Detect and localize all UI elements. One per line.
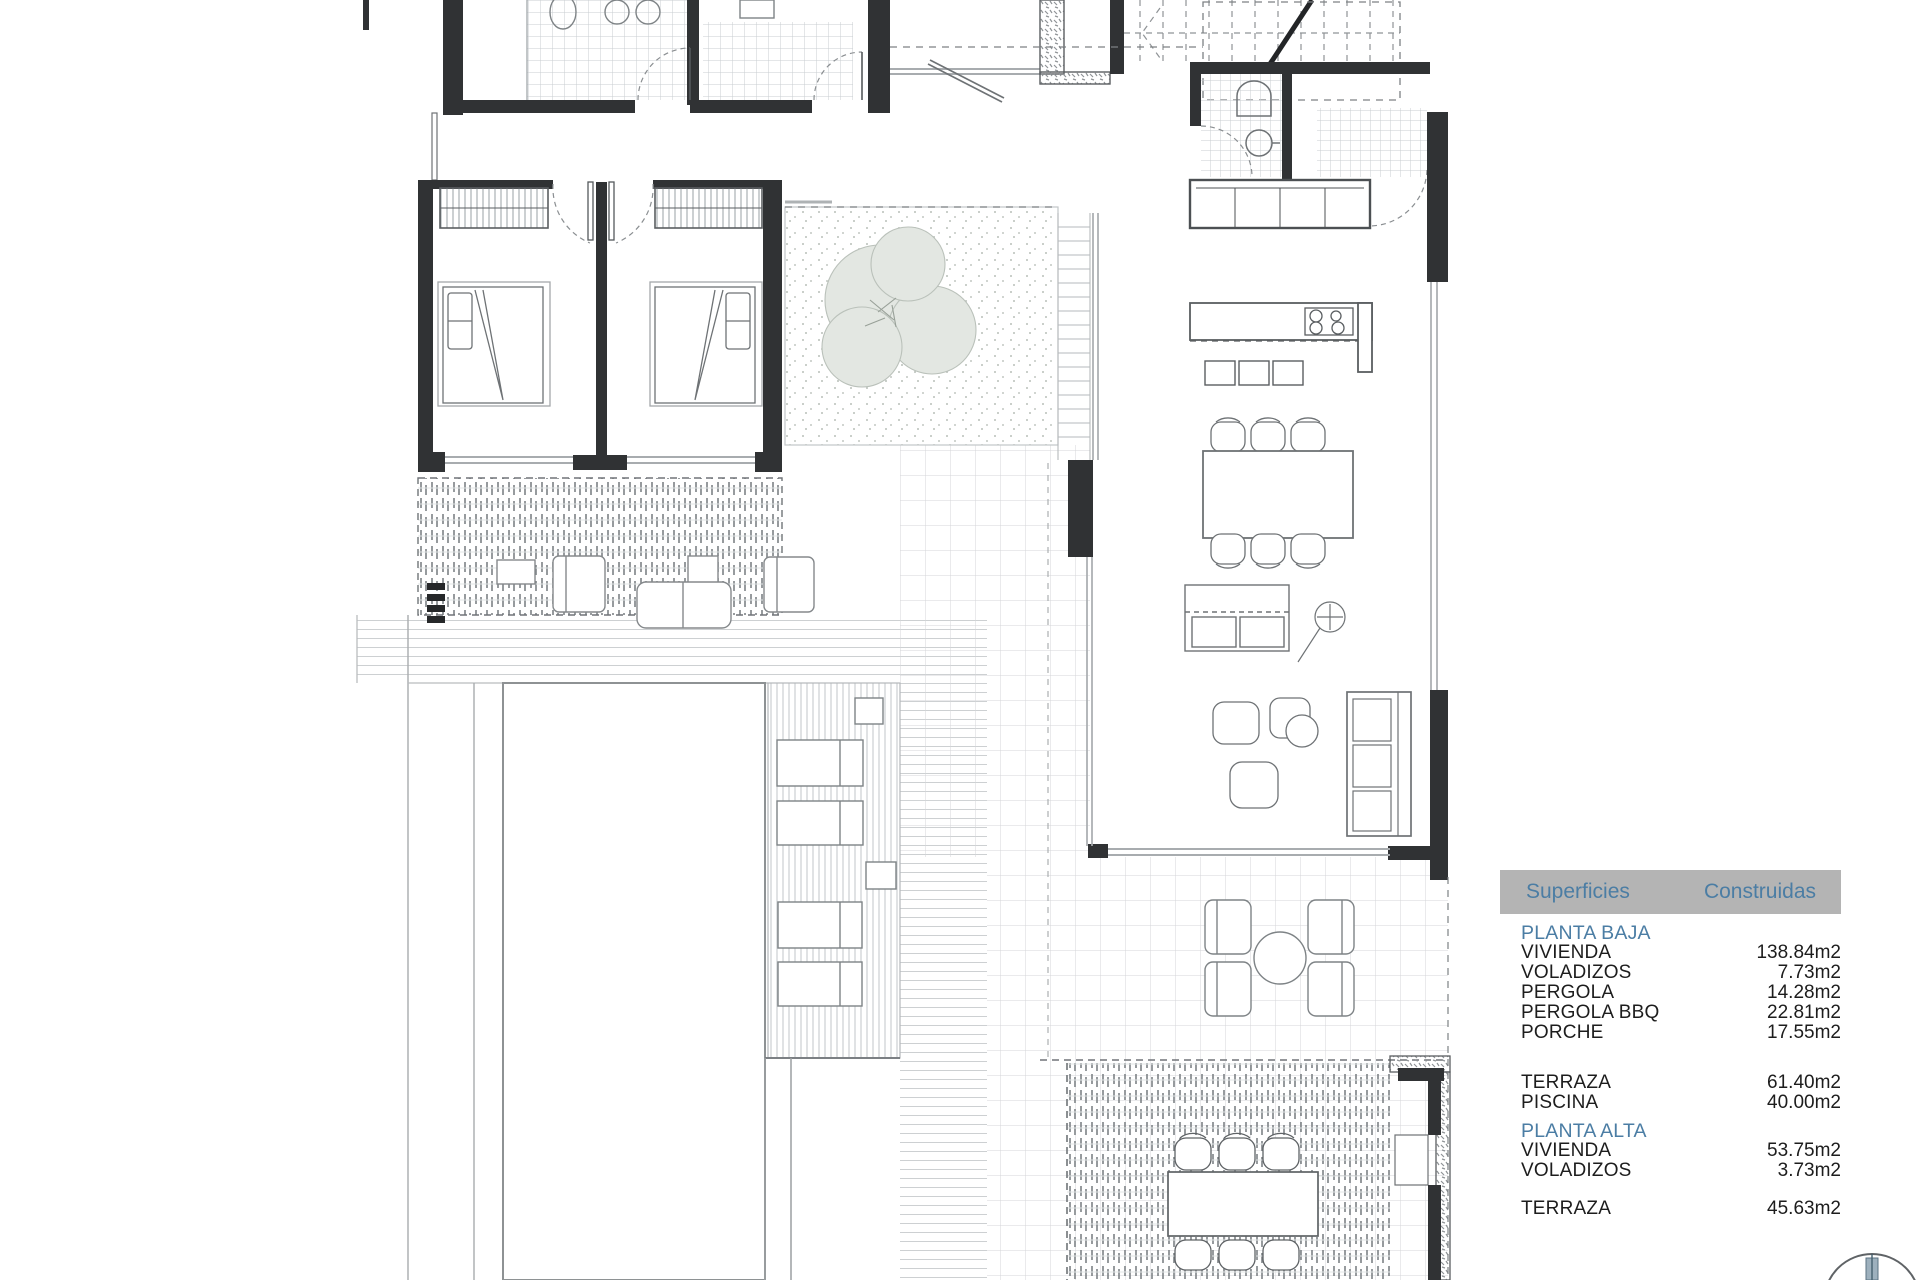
row-label: PERGOLA BBQ — [1521, 1003, 1659, 1023]
north-arrow-icon — [1824, 1254, 1920, 1280]
hall-storage — [1190, 180, 1370, 228]
floorplan-document: Superficies Construidas PLANTA BAJAVIVIE… — [0, 0, 1920, 1280]
row-value: 22.81m2 — [1767, 1003, 1841, 1023]
side-terrace — [900, 445, 1090, 857]
dining-table — [1203, 451, 1353, 538]
kitchen — [1190, 303, 1372, 385]
row-value: 40.00m2 — [1767, 1093, 1841, 1113]
table-row: VOLADIZOS7.73m2 — [1500, 963, 1841, 983]
hall-floor — [1317, 108, 1427, 177]
table-row: TERRAZA45.63m2 — [1500, 1199, 1841, 1219]
surfaces-header-label: Superficies — [1526, 880, 1630, 904]
row-value: 53.75m2 — [1767, 1141, 1841, 1161]
floor-lamp — [1298, 602, 1345, 662]
row-label: PLANTA ALTA — [1521, 1121, 1647, 1141]
front-door-swing — [1369, 170, 1427, 226]
row-label: TERRAZA — [1521, 1199, 1611, 1219]
row-value: 7.73m2 — [1778, 963, 1841, 983]
row-value: 138.84m2 — [1756, 943, 1841, 963]
wc — [1190, 74, 1292, 185]
bed — [438, 282, 550, 406]
row-label: VOLADIZOS — [1521, 1161, 1632, 1181]
bed — [650, 282, 762, 406]
row-value: 17.55m2 — [1767, 1023, 1841, 1043]
sun-deck — [765, 683, 900, 1280]
table-row: TERRAZA61.40m2 — [1500, 1073, 1841, 1093]
pool — [474, 683, 765, 1280]
row-label: PISCINA — [1521, 1093, 1598, 1113]
living-room-furniture — [1185, 585, 1411, 836]
bathroom2-floor — [703, 22, 853, 100]
bathroom-block — [363, 0, 890, 180]
row-label: VOLADIZOS — [1521, 963, 1632, 983]
row-value: 61.40m2 — [1767, 1073, 1841, 1093]
table-row: PERGOLA14.28m2 — [1500, 983, 1841, 1003]
side-table — [866, 862, 896, 889]
table-row: VIVIENDA138.84m2 — [1500, 943, 1841, 963]
row-label: PLANTA BAJA — [1521, 923, 1651, 943]
table-row: VOLADIZOS3.73m2 — [1500, 1161, 1841, 1181]
entry-zone — [890, 0, 1433, 228]
poufs — [1213, 698, 1318, 808]
table-section-row: PLANTA BAJA — [1500, 923, 1841, 943]
table-section-row: PLANTA ALTA — [1500, 1121, 1841, 1141]
side-table — [855, 698, 883, 724]
sun-lounger — [778, 902, 862, 948]
table-row: PERGOLA BBQ22.81m2 — [1500, 1003, 1841, 1023]
staircase — [890, 0, 1400, 100]
sun-lounger — [778, 962, 862, 1006]
surfaces-table: Superficies Construidas PLANTA BAJAVIVIE… — [1500, 870, 1841, 1219]
courtyard — [785, 202, 1090, 460]
row-label: PORCHE — [1521, 1023, 1604, 1043]
row-label: TERRAZA — [1521, 1073, 1611, 1093]
bathroom-floor — [527, 0, 687, 100]
bar-stools — [1205, 361, 1303, 385]
sun-lounger — [777, 801, 863, 845]
open-door-leaf — [928, 60, 1004, 102]
stone-wall — [1040, 0, 1110, 84]
row-value: 45.63m2 — [1767, 1199, 1841, 1219]
row-label: VIVIENDA — [1521, 1141, 1611, 1161]
cooktop — [1305, 308, 1353, 335]
bedroom-wing — [418, 180, 782, 472]
sofa — [1347, 692, 1411, 836]
row-label: VIVIENDA — [1521, 943, 1611, 963]
dining-set — [1203, 418, 1353, 568]
surfaces-table-header: Superficies Construidas — [1500, 870, 1841, 914]
sofa — [1185, 585, 1289, 651]
corridor-wall — [432, 113, 437, 180]
surfaces-table-rows: PLANTA BAJAVIVIENDA138.84m2VOLADIZOS7.73… — [1500, 923, 1841, 1219]
table-row: PORCHE17.55m2 — [1500, 1023, 1841, 1043]
construidas-header-label: Construidas — [1704, 880, 1816, 904]
sun-lounger — [777, 740, 863, 786]
table-row: PISCINA40.00m2 — [1500, 1093, 1841, 1113]
round-table — [1254, 932, 1306, 984]
row-value: 3.73m2 — [1778, 1161, 1841, 1181]
row-label: PERGOLA — [1521, 983, 1614, 1003]
walkway — [1058, 213, 1090, 460]
table-row: VIVIENDA53.75m2 — [1500, 1141, 1841, 1161]
row-value: 14.28m2 — [1767, 983, 1841, 1003]
outdoor-dining-set — [1168, 1133, 1318, 1270]
